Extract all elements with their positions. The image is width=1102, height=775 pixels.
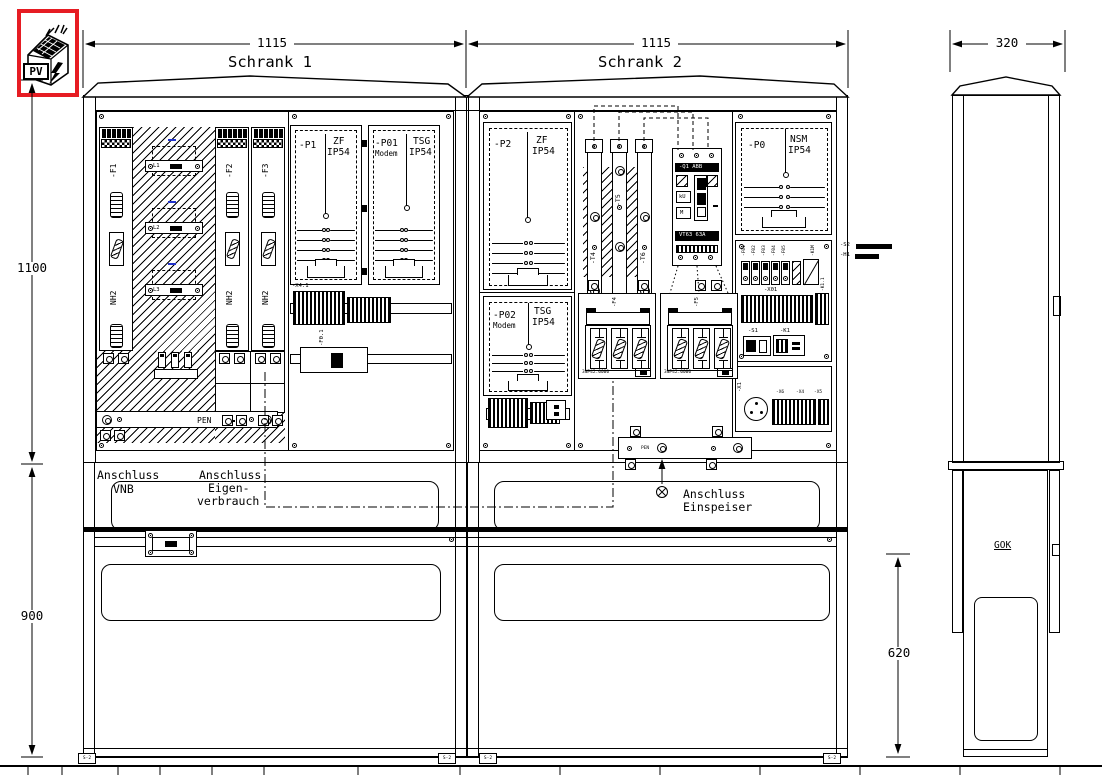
panel-divider	[480, 292, 574, 293]
phase-label: L2	[153, 226, 160, 232]
bolt-icon	[102, 415, 112, 425]
annotation-s2: -S2	[840, 243, 850, 249]
breaker-aux-ku: kU	[679, 195, 686, 201]
bolt-terminal	[100, 430, 111, 441]
hinge-icon	[362, 268, 367, 275]
screw-icon	[627, 446, 632, 451]
bolt-terminal	[236, 415, 247, 426]
bolt-terminal	[695, 280, 706, 291]
screw-icon	[642, 144, 647, 149]
bolt-terminal	[711, 280, 722, 291]
pv-logo-label: PV	[23, 63, 49, 80]
fuse-holder-label: -F0.1	[320, 328, 328, 348]
nh-switch-f5: -F5 3NP42.0000	[660, 293, 738, 379]
bolt-terminal	[272, 415, 283, 426]
side-latch	[1052, 544, 1060, 556]
bolt-terminal	[712, 426, 723, 437]
bolt-terminal	[588, 280, 599, 291]
dim-side-base-height: 620	[884, 647, 914, 660]
fuse-cartridge-icon	[715, 338, 730, 360]
base-bottom-line	[83, 748, 848, 749]
nh-switch-part: 3NP42.0000	[582, 371, 609, 376]
screw-icon	[738, 114, 743, 119]
phase-label: L1	[153, 164, 160, 170]
terminal-block-label: -X4.1	[292, 284, 309, 290]
screw-icon	[693, 255, 698, 260]
aux-module	[792, 261, 801, 285]
bolt-terminal	[219, 353, 230, 364]
terminal-block-x41	[293, 291, 345, 325]
x5-label: -X5	[814, 391, 822, 396]
meter-ip: IP54	[532, 318, 555, 328]
meter-seal-icon	[785, 129, 786, 173]
mcb-label: -F03	[763, 243, 770, 259]
breaker-pad	[676, 175, 688, 187]
mcb-label: -F01	[743, 243, 750, 259]
bolt-terminal	[638, 280, 649, 291]
side-wall-line	[1048, 96, 1049, 462]
socket-panel: -X1 -X6 -X4 -X5	[735, 366, 832, 432]
nh-switch-id: -F5	[695, 295, 703, 309]
foot-label: S-2	[78, 753, 96, 764]
drawing-canvas: PV -F1 NH2 -F2 N	[0, 0, 1102, 775]
meter-panel-p02: -P02 Modem TSG IP54	[483, 296, 572, 396]
nh-fuse-column-f3: -F3 NH2	[251, 127, 285, 351]
annotation-h1: -H1	[840, 253, 850, 259]
bolt-terminal	[706, 459, 717, 470]
annotation-text-smudge	[855, 254, 879, 259]
hinge-icon	[362, 205, 367, 212]
breaker-q1: -Q1 ABB kU M VT63 63A	[672, 148, 722, 266]
screw-icon	[773, 276, 778, 281]
screw-icon	[711, 446, 716, 451]
screw-icon	[578, 114, 583, 119]
meter-modem: Modem	[375, 150, 398, 158]
screw-icon	[679, 153, 684, 158]
pen-busbar: PEN	[96, 411, 278, 428]
fuse-size-label: NH2	[110, 278, 122, 318]
fuse-cap	[101, 129, 131, 138]
mcb	[781, 261, 790, 285]
meter-panel-p1: -P1 ZF IP54	[290, 125, 362, 285]
foot-label: S-2	[438, 753, 456, 764]
mcb	[751, 261, 760, 285]
screw-icon	[99, 443, 104, 448]
panel-divider	[288, 112, 289, 451]
terminal-block	[818, 399, 829, 425]
phase-mark	[168, 263, 176, 265]
busbar-l3	[637, 148, 652, 302]
meter-ip: IP54	[788, 146, 811, 156]
meter-id: -P1	[299, 141, 316, 151]
nh-switch-part: 3NP42.0000	[664, 371, 691, 376]
fuse-cartridge-icon	[262, 238, 276, 260]
bolt-icon	[590, 212, 600, 222]
fuse-checker-strip	[253, 139, 283, 148]
screw-icon	[566, 443, 571, 448]
title-block-edge	[0, 766, 1102, 775]
screw-icon	[189, 550, 194, 555]
mini-terminal	[184, 352, 192, 368]
pv-house-icon	[21, 13, 75, 93]
phase-label: L3	[153, 288, 160, 294]
meter-ip: IP54	[327, 148, 350, 158]
fuse-cylinder	[262, 192, 275, 218]
side-door-handle	[1053, 296, 1061, 316]
contactor	[803, 259, 819, 285]
screw-icon	[824, 244, 829, 249]
fuse-cartridge-icon	[694, 338, 709, 360]
bolt-icon	[733, 443, 743, 453]
base-leg	[83, 462, 95, 757]
meter-type: ZF	[333, 137, 344, 147]
terminal-block	[347, 297, 391, 323]
meter-id: -P01	[375, 139, 398, 149]
bolt-terminal	[270, 353, 281, 364]
contactor-label: -K1M	[812, 243, 819, 259]
fuse-size-label: NH2	[262, 278, 274, 318]
mini-terminal-rail	[154, 369, 198, 379]
bolt-terminal	[234, 353, 245, 364]
meter-seal-icon	[325, 134, 326, 214]
side-view-body	[952, 95, 1060, 463]
base-door-einspeiser	[494, 481, 820, 531]
fuse-cylinder	[262, 324, 275, 348]
terminal-block	[488, 398, 528, 428]
phase-terminal-l1: L1	[145, 160, 203, 172]
dim-upper-height: 1100	[12, 262, 52, 275]
bolt-icon	[657, 443, 667, 453]
screw-icon	[709, 153, 714, 158]
dim-side-width: 320	[988, 37, 1026, 50]
base-leg	[455, 462, 467, 757]
rail-line	[95, 537, 836, 538]
bolt-terminal	[630, 426, 641, 437]
screw-icon	[148, 550, 153, 555]
meter-type: ZF	[536, 136, 547, 146]
base-leg	[467, 462, 479, 757]
cable-clamp	[145, 530, 197, 557]
feeder-pen-label: PEN	[641, 447, 649, 452]
meter-id: -P2	[494, 140, 511, 150]
screw-icon	[824, 354, 829, 359]
base-door-vnb	[111, 481, 439, 531]
dim-base-height: 900	[16, 610, 48, 623]
meter-type: TSG	[534, 307, 551, 317]
fuse-checker-strip	[101, 139, 131, 148]
phase-terminal-l2: L2	[145, 222, 203, 234]
breaker-id-label: -Q1 ABB	[679, 165, 702, 171]
side-flange	[948, 461, 1064, 470]
screw-icon	[617, 144, 622, 149]
meter-id: -P02	[493, 311, 516, 321]
mini-terminal	[158, 352, 166, 368]
screw-icon	[678, 255, 683, 260]
screw-icon	[827, 537, 832, 542]
aux-box	[546, 400, 566, 420]
fuse-checker-strip	[217, 139, 247, 148]
screw-icon	[826, 443, 831, 448]
anschluss-eigen-line1: Anschluss	[199, 470, 261, 482]
screw-icon	[292, 114, 297, 119]
bolt-icon	[640, 212, 650, 222]
fuse-cylinder	[110, 192, 123, 218]
mcb-label: -F02	[753, 243, 760, 259]
fuse-cylinder	[110, 324, 123, 348]
fuse-size-label: NH2	[226, 278, 238, 318]
screw-icon	[446, 114, 451, 119]
bolt-terminal	[258, 415, 269, 426]
relay-k11	[815, 293, 829, 325]
foot-label: S-2	[479, 753, 497, 764]
screw-icon	[195, 226, 200, 231]
screw-icon	[578, 443, 583, 448]
rail-line	[95, 546, 836, 547]
screw-icon	[195, 164, 200, 169]
anschluss-vnb-line2: VNB	[113, 484, 134, 496]
control-panel: -F01 -F02 -F03 -F04 -F05 -K1M -X01 -K1.1…	[735, 240, 832, 362]
wall-line	[455, 97, 456, 462]
nh-switch-f4: -F4 3NP42.0000	[578, 293, 656, 379]
bolt-terminal	[222, 415, 233, 426]
bolt-terminal	[114, 430, 125, 441]
x6-label: -X6	[776, 391, 784, 396]
wall-line	[466, 97, 467, 462]
phase-mark	[168, 139, 176, 141]
x4-label: -X4	[796, 391, 804, 396]
terminal-strip-label: -X01	[764, 288, 777, 294]
fuse-cylinder	[226, 324, 239, 348]
screw-icon	[826, 114, 831, 119]
screw-icon	[483, 443, 488, 448]
bolt-icon	[615, 242, 625, 252]
ct-label-t5: -T5	[615, 188, 624, 212]
nh-fuse-column-f1: -F1 NH2	[99, 127, 133, 351]
fuse-cartridge-icon	[226, 238, 240, 260]
plinth-bar	[83, 527, 848, 532]
panel-divider	[574, 112, 575, 451]
gok-label: GOK	[994, 541, 1011, 551]
phase-terminal-l3: L3	[145, 284, 203, 296]
screw-icon	[292, 443, 297, 448]
busbar-pad	[585, 139, 603, 153]
schrank1-title: Schrank 1	[205, 55, 335, 71]
meter-modem: Modem	[493, 322, 516, 330]
terminal-strip-x01	[741, 295, 813, 323]
screw-icon	[117, 417, 122, 422]
ct-label-t4: -T4	[590, 246, 599, 270]
anschluss-einspeiser-line2: Einspeiser	[683, 502, 752, 514]
meter-seal-icon	[406, 134, 407, 206]
pen-label: PEN	[197, 417, 211, 425]
screw-icon	[566, 114, 571, 119]
mcb	[761, 261, 770, 285]
fuse-holder-f01	[300, 347, 368, 373]
dim-schrank1-width: 1115	[250, 37, 294, 50]
ct-label-t6: -T6	[640, 246, 649, 270]
screw-icon	[694, 153, 699, 158]
meter-seal-icon	[527, 132, 528, 218]
feeder-busbar: PEN	[618, 437, 752, 459]
k1-label: -K1	[780, 329, 790, 335]
x1-label: -X1	[738, 379, 746, 395]
screw-icon	[99, 114, 104, 119]
screw-icon	[483, 114, 488, 119]
breaker-terminals	[676, 245, 718, 253]
anschluss-einspeiser-line1: Anschluss	[683, 489, 745, 501]
pv-logo: PV	[17, 9, 79, 97]
screw-icon	[148, 288, 153, 293]
fuse-cartridge-icon	[591, 338, 606, 360]
bolt-terminal	[118, 353, 129, 364]
bolt-terminal	[625, 459, 636, 470]
nh-fuse-column-f2: -F2 NH2	[215, 127, 249, 351]
meter-ip: IP54	[532, 147, 555, 157]
phase-mark	[168, 201, 176, 203]
fuse-cartridge-icon	[633, 338, 648, 360]
base-lower-door	[494, 564, 830, 621]
panel-divider	[732, 112, 733, 451]
fuse-cartridge-icon	[673, 338, 688, 360]
screw-icon	[148, 533, 153, 538]
busbar-l1	[587, 148, 602, 302]
side-wall-stub	[952, 470, 963, 633]
base-leg	[836, 462, 848, 757]
fuse-id-label: -F2	[226, 152, 238, 190]
mini-terminal	[171, 352, 179, 368]
roof-outlines	[83, 76, 1060, 97]
screw-icon	[449, 537, 454, 542]
fuse-id-label: -F1	[110, 152, 122, 190]
fuse-id-label: -F3	[262, 152, 274, 190]
busbar-pad	[610, 139, 628, 153]
fuse-cap	[253, 129, 283, 138]
foot-label: S-2	[823, 753, 841, 764]
annotation-text-smudge	[856, 244, 892, 249]
screw-icon	[753, 276, 758, 281]
screw-icon	[763, 276, 768, 281]
fuse-cartridge-icon	[612, 338, 627, 360]
dim-schrank2-width: 1115	[634, 37, 678, 50]
meter-seal-icon	[528, 303, 529, 345]
mcb-label: -F04	[773, 243, 780, 259]
fuse-cap	[217, 129, 247, 138]
meter-id: -P0	[748, 141, 765, 151]
switch-label: -S1	[748, 329, 758, 335]
meter-panel-p0: -P0 NSM IP54	[735, 122, 832, 235]
bolt-icon	[615, 166, 625, 176]
meter-type: TSG	[413, 137, 430, 147]
module-k1	[773, 335, 805, 356]
side-base-plate	[974, 597, 1038, 741]
fuse-cylinder	[226, 192, 239, 218]
bolt-terminal	[103, 353, 114, 364]
mcb-label: -F05	[783, 243, 790, 259]
busbar-pad	[635, 139, 653, 153]
relay-label: -K1.1	[822, 277, 829, 292]
side-wall-line	[963, 96, 964, 462]
screw-icon	[592, 144, 597, 149]
base-bottom-line	[83, 756, 848, 758]
bolt-terminal	[255, 353, 266, 364]
screw-icon	[189, 533, 194, 538]
base-lower-door	[101, 564, 441, 621]
mcb	[771, 261, 780, 285]
hinge-icon	[362, 140, 367, 147]
wall-line	[468, 97, 469, 462]
screw-icon	[148, 226, 153, 231]
screw-icon	[708, 255, 713, 260]
fuse-cartridge-icon	[110, 238, 124, 260]
breaker-rating: VT63 63A	[679, 233, 706, 239]
mcb	[741, 261, 750, 285]
meter-panel-p2: -P2 ZF IP54	[483, 122, 572, 290]
meter-panel-p01: -P01 Modem TSG IP54	[368, 125, 440, 285]
meter-type: NSM	[790, 135, 807, 145]
screw-icon	[446, 443, 451, 448]
screw-icon	[195, 288, 200, 293]
breaker-aux-m: M	[680, 211, 683, 217]
meter-ip: IP54	[409, 148, 432, 158]
cee-socket-icon	[744, 397, 768, 421]
anschluss-vnb-line1: Anschluss	[97, 470, 159, 482]
screw-icon	[249, 417, 254, 422]
anschluss-eigen-line2: Eigen-	[208, 483, 250, 495]
side-bottom-line	[963, 749, 1048, 750]
screw-icon	[783, 276, 788, 281]
anschluss-eigen-line3: verbrauch	[197, 496, 259, 508]
schrank2-title: Schrank 2	[575, 55, 705, 71]
screw-icon	[743, 276, 748, 281]
nh-switch-id: -F4	[613, 295, 621, 309]
terminal-block	[772, 399, 816, 425]
switch-s1	[743, 336, 771, 356]
screw-icon	[148, 164, 153, 169]
